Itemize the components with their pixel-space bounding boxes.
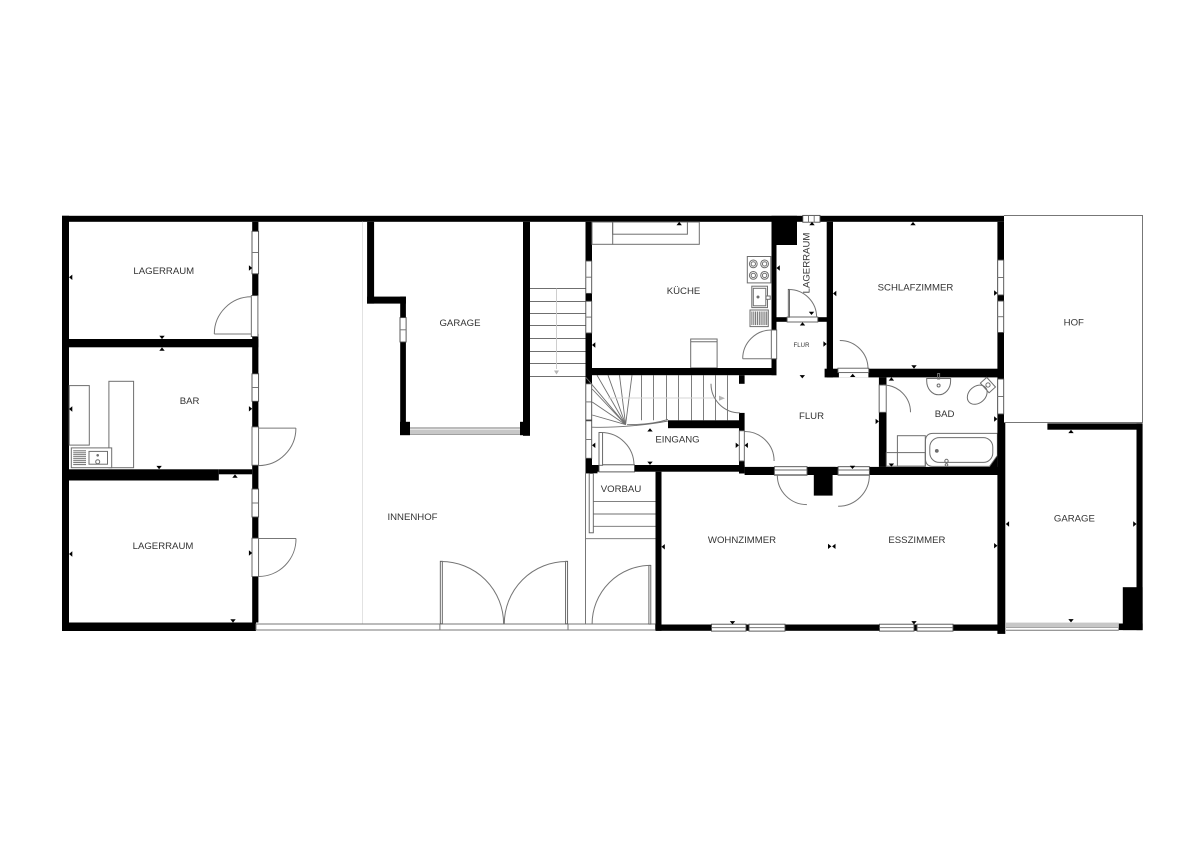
svg-text:KÜCHE: KÜCHE — [667, 286, 701, 297]
svg-text:BAD: BAD — [935, 409, 955, 420]
svg-text:ESSZIMMER: ESSZIMMER — [888, 535, 945, 546]
svg-text:LAGERRAUM: LAGERRAUM — [133, 266, 194, 277]
svg-text:GARAGE: GARAGE — [439, 318, 480, 329]
svg-text:EINGANG: EINGANG — [655, 435, 699, 446]
svg-text:VORBAU: VORBAU — [601, 484, 642, 495]
svg-text:FLUR: FLUR — [793, 343, 810, 349]
svg-text:LAGERRAUM: LAGERRAUM — [133, 541, 194, 552]
svg-text:FLUR: FLUR — [799, 411, 824, 422]
svg-text:HOF: HOF — [1064, 318, 1084, 329]
svg-text:WOHNZIMMER: WOHNZIMMER — [708, 535, 776, 546]
svg-text:INNENHOF: INNENHOF — [387, 512, 437, 523]
svg-text:GARAGE: GARAGE — [1054, 514, 1095, 525]
svg-text:BAR: BAR — [180, 396, 200, 407]
svg-text:LAGERRAUM: LAGERRAUM — [801, 233, 812, 294]
svg-text:SCHLAFZIMMER: SCHLAFZIMMER — [878, 282, 954, 293]
